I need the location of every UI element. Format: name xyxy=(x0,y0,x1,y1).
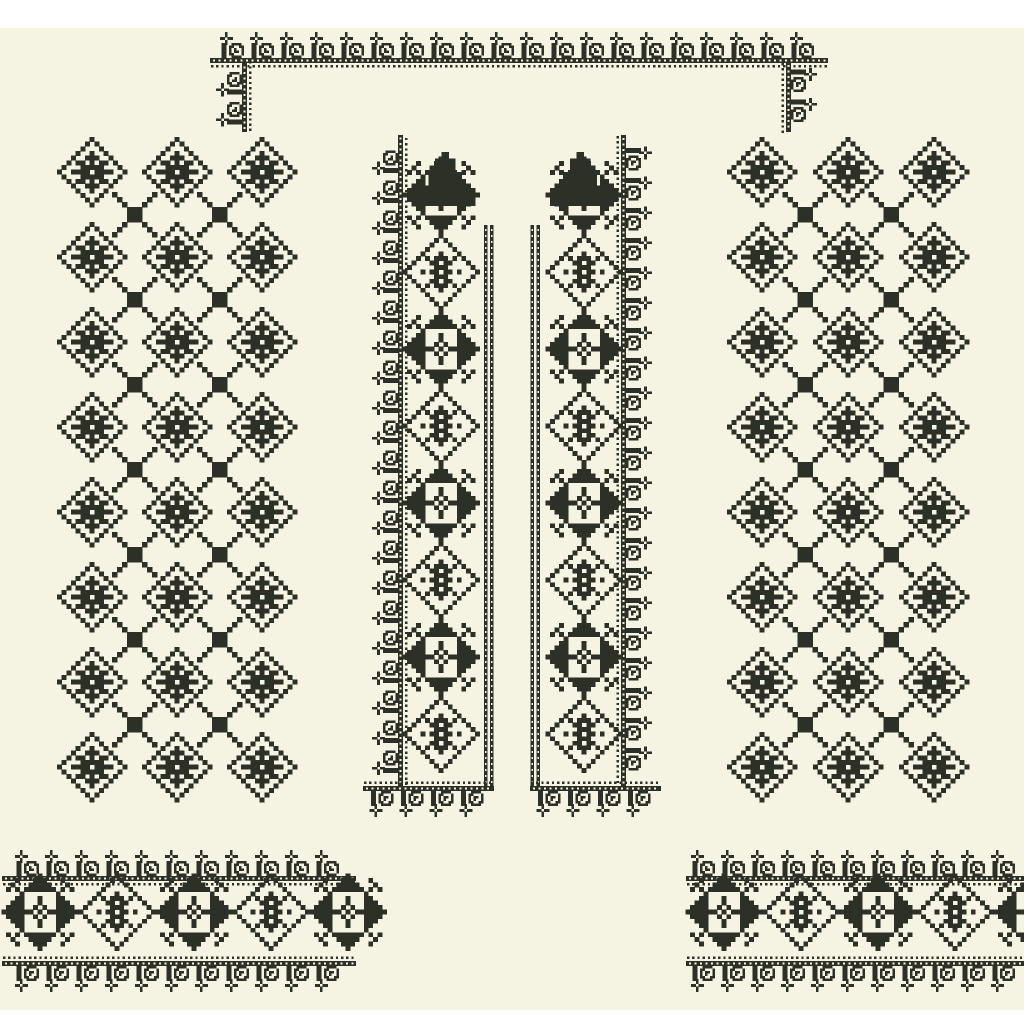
embroidery-pattern-image xyxy=(0,0,1024,1024)
embroidery-canvas xyxy=(0,0,1024,1024)
